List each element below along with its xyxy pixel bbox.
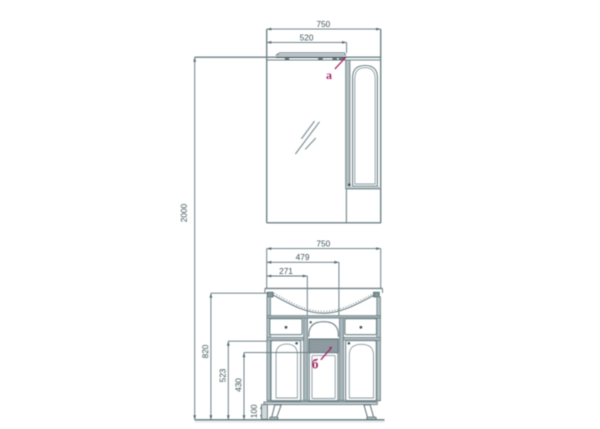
svg-text:479: 479: [296, 252, 310, 262]
svg-text:2000: 2000: [179, 203, 189, 222]
svg-text:750: 750: [316, 239, 330, 249]
svg-text:430: 430: [233, 378, 243, 392]
svg-text:a: a: [326, 68, 332, 82]
svg-text:523: 523: [218, 368, 228, 382]
svg-text:820: 820: [200, 344, 210, 358]
svg-text:520: 520: [300, 32, 314, 42]
svg-text:750: 750: [316, 19, 330, 29]
svg-text:271: 271: [279, 266, 293, 276]
svg-text:б: б: [312, 357, 319, 372]
svg-text:100: 100: [249, 404, 259, 418]
